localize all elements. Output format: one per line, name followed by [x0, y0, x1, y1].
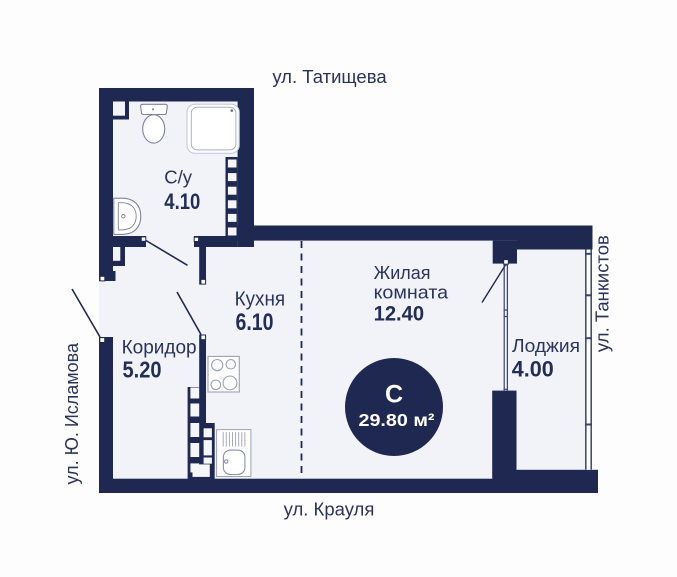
svg-text:ул. Крауля: ул. Крауля — [284, 499, 375, 520]
svg-text:ул. Танкистов: ул. Танкистов — [592, 235, 613, 352]
svg-text:12.40: 12.40 — [374, 303, 425, 326]
svg-text:С/у: С/у — [164, 166, 193, 187]
svg-text:4.10: 4.10 — [164, 189, 200, 214]
svg-text:29.80 м²: 29.80 м² — [359, 410, 435, 430]
svg-text:Лоджия: Лоджия — [512, 336, 580, 356]
svg-text:4.00: 4.00 — [512, 357, 554, 382]
svg-text:ул. Татищева: ул. Татищева — [272, 66, 387, 87]
svg-text:комната: комната — [374, 282, 450, 302]
svg-text:ул. Ю. Исламова: ул. Ю. Исламова — [61, 342, 82, 484]
svg-text:Жилая: Жилая — [374, 263, 431, 283]
svg-text:Кухня: Кухня — [235, 288, 286, 310]
svg-text:6.10: 6.10 — [236, 309, 274, 336]
svg-text:5.20: 5.20 — [123, 356, 162, 382]
svg-text:С: С — [385, 381, 403, 409]
